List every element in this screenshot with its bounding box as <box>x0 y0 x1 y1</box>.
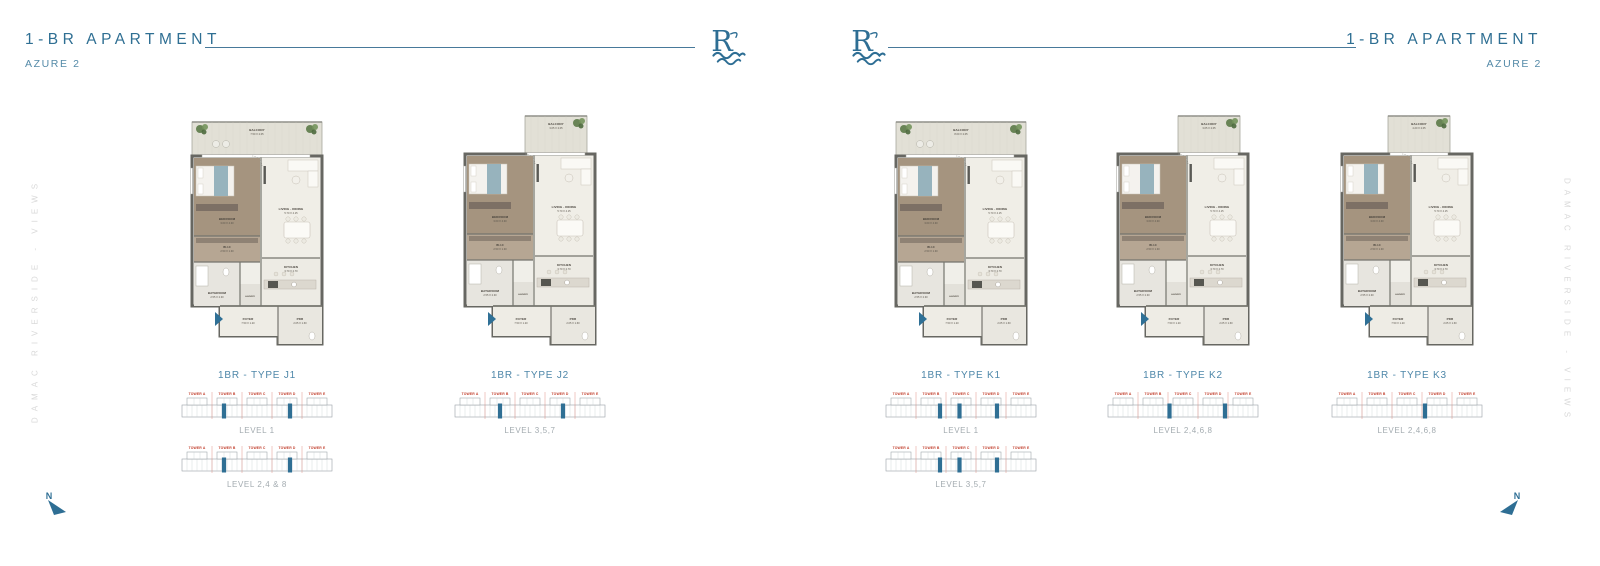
svg-text:3.70 X 2.70: 3.70 X 2.70 <box>988 269 1002 273</box>
svg-text:2.05 X 1.60: 2.05 X 1.60 <box>566 321 580 325</box>
svg-text:3.60 X 4.30: 3.60 X 4.30 <box>220 221 234 225</box>
north-arrow-icon: N <box>1496 488 1526 520</box>
svg-text:2.55 X 2.30: 2.55 X 2.30 <box>210 295 224 299</box>
svg-text:2.50 X 1.30: 2.50 X 1.30 <box>1370 247 1384 251</box>
svg-text:TOWER A: TOWER A <box>462 392 479 396</box>
keyplan-diagram: TOWER ATOWER BTOWER CTOWER DTOWER E <box>450 389 610 429</box>
level-label: LEVEL 2,4,6,8 <box>1332 426 1482 435</box>
svg-text:BALCONY: BALCONY <box>1411 122 1427 126</box>
floorplan-drawing-k3: BALCONY4.20 X 2.05BEDROOM3.60 X 4.30LIVI… <box>1332 108 1482 358</box>
svg-text:TOWER B: TOWER B <box>1369 392 1386 396</box>
svg-text:N: N <box>46 491 53 501</box>
svg-text:5.70 X 4.15: 5.70 X 4.15 <box>557 209 571 213</box>
svg-text:LAUNDRY: LAUNDRY <box>518 293 529 296</box>
svg-text:LIVING - DINING: LIVING - DINING <box>552 205 577 209</box>
svg-text:TOWER D: TOWER D <box>552 392 569 396</box>
floorplan-block-j1: BALCONY7.50 X 2.05BEDROOM3.60 X 4.30LIVI… <box>182 108 332 489</box>
level-label: LEVEL 2,4 & 8 <box>182 480 332 489</box>
svg-text:FOYER: FOYER <box>1393 317 1405 321</box>
keyplan-diagram: TOWER ATOWER BTOWER CTOWER DTOWER E <box>177 389 337 429</box>
svg-text:TOWER D: TOWER D <box>983 392 1000 396</box>
svg-text:LAUNDRY: LAUNDRY <box>1171 293 1182 296</box>
svg-text:2.55 X 2.30: 2.55 X 2.30 <box>1360 293 1374 297</box>
svg-text:KITCHEN: KITCHEN <box>1434 263 1448 267</box>
svg-text:TOWER E: TOWER E <box>1013 446 1030 450</box>
svg-text:TOWER C: TOWER C <box>953 446 970 450</box>
svg-text:3.05 X 2.05: 3.05 X 2.05 <box>549 126 563 130</box>
svg-text:BEDROOM: BEDROOM <box>1369 215 1386 219</box>
svg-text:3.60 X 4.30: 3.60 X 4.30 <box>924 221 938 225</box>
svg-text:FOYER: FOYER <box>516 317 528 321</box>
svg-text:TOWER E: TOWER E <box>1235 392 1252 396</box>
north-arrow-icon: N <box>40 488 70 520</box>
level-label: LEVEL 2,4,6,8 <box>1108 426 1258 435</box>
svg-text:TOWER B: TOWER B <box>1145 392 1162 396</box>
svg-text:2.55 X 2.30: 2.55 X 2.30 <box>914 295 928 299</box>
svg-text:TOWER A: TOWER A <box>893 392 910 396</box>
svg-text:3.70 X 2.70: 3.70 X 2.70 <box>1210 267 1224 271</box>
level-label: LEVEL 3,5,7 <box>455 426 605 435</box>
svg-text:BEDROOM: BEDROOM <box>492 215 509 219</box>
svg-text:4.20 X 2.05: 4.20 X 2.05 <box>1412 126 1426 130</box>
level-label: LEVEL 1 <box>182 426 332 435</box>
svg-text:LIVING - DINING: LIVING - DINING <box>279 207 304 211</box>
brand-logo-icon: R <box>843 20 895 72</box>
svg-text:TOWER A: TOWER A <box>189 446 206 450</box>
page-subtitle-left: AZURE 2 <box>25 58 81 70</box>
svg-text:LIVING - DINING: LIVING - DINING <box>1429 205 1454 209</box>
svg-text:3.70 X 2.70: 3.70 X 2.70 <box>557 267 571 271</box>
svg-text:TOWER E: TOWER E <box>1013 392 1030 396</box>
level-label: LEVEL 1 <box>886 426 1036 435</box>
svg-text:TOWER A: TOWER A <box>189 392 206 396</box>
svg-text:2.55 X 2.30: 2.55 X 2.30 <box>483 293 497 297</box>
svg-text:BEDROOM: BEDROOM <box>923 217 940 221</box>
svg-text:TOWER D: TOWER D <box>279 392 296 396</box>
floorplan-block-k2: BALCONY3.05 X 2.05BEDROOM3.60 X 4.30LIVI… <box>1108 108 1258 435</box>
svg-text:TOWER B: TOWER B <box>219 446 236 450</box>
svg-text:TOWER A: TOWER A <box>1115 392 1132 396</box>
svg-text:W.I.C: W.I.C <box>927 245 936 249</box>
svg-text:2.50 X 1.30: 2.50 X 1.30 <box>924 249 938 253</box>
svg-text:FOYER: FOYER <box>947 317 959 321</box>
svg-text:PDR: PDR <box>1447 317 1454 321</box>
brand-logo-icon: R <box>703 20 755 72</box>
svg-text:3.70 X 2.70: 3.70 X 2.70 <box>1434 267 1448 271</box>
svg-text:BALCONY: BALCONY <box>1201 122 1217 126</box>
svg-text:3.05 X 2.05: 3.05 X 2.05 <box>1202 126 1216 130</box>
svg-text:TOWER A: TOWER A <box>1339 392 1356 396</box>
svg-text:TOWER E: TOWER E <box>582 392 599 396</box>
page-title-left: 1-BR APARTMENT <box>25 31 221 49</box>
svg-text:TOWER C: TOWER C <box>249 446 266 450</box>
svg-text:BATHROOM: BATHROOM <box>481 289 500 293</box>
svg-text:TOWER D: TOWER D <box>1429 392 1446 396</box>
keyplan-diagram: TOWER ATOWER BTOWER CTOWER DTOWER E <box>881 443 1041 483</box>
level-label: LEVEL 3,5,7 <box>886 480 1036 489</box>
svg-text:TOWER C: TOWER C <box>1175 392 1192 396</box>
svg-text:BATHROOM: BATHROOM <box>912 291 931 295</box>
plan-type-label: 1BR - TYPE K2 <box>1108 370 1258 381</box>
page-title-right: 1-BR APARTMENT <box>1222 31 1542 49</box>
svg-text:7.50 X 1.20: 7.50 X 1.20 <box>514 321 528 325</box>
svg-text:5.70 X 4.15: 5.70 X 4.15 <box>1434 209 1448 213</box>
svg-text:TOWER B: TOWER B <box>492 392 509 396</box>
plan-type-label: 1BR - TYPE K1 <box>886 370 1036 381</box>
svg-text:3.60 X 4.30: 3.60 X 4.30 <box>493 219 507 223</box>
svg-text:TOWER B: TOWER B <box>923 446 940 450</box>
svg-text:3.60 X 4.30: 3.60 X 4.30 <box>1370 219 1384 223</box>
svg-text:5.70 X 4.15: 5.70 X 4.15 <box>1210 209 1224 213</box>
svg-text:BALCONY: BALCONY <box>249 128 265 132</box>
svg-text:LAUNDRY: LAUNDRY <box>245 295 256 298</box>
svg-text:2.50 X 1.30: 2.50 X 1.30 <box>493 247 507 251</box>
svg-text:TOWER D: TOWER D <box>1205 392 1222 396</box>
svg-text:TOWER B: TOWER B <box>923 392 940 396</box>
brochure-spread: DAMAC RIVERSIDE - VIEWS DAMAC RIVERSIDE … <box>0 0 1600 566</box>
svg-text:KITCHEN: KITCHEN <box>988 265 1002 269</box>
svg-text:7.50 X 2.05: 7.50 X 2.05 <box>250 132 264 136</box>
svg-text:TOWER E: TOWER E <box>309 392 326 396</box>
floorplan-block-k3: BALCONY4.20 X 2.05BEDROOM3.60 X 4.30LIVI… <box>1332 108 1482 435</box>
svg-text:7.50 X 1.20: 7.50 X 1.20 <box>1391 321 1405 325</box>
svg-text:5.70 X 4.15: 5.70 X 4.15 <box>284 211 298 215</box>
floorplan-block-j2: BALCONY3.05 X 2.05BEDROOM3.60 X 4.30LIVI… <box>455 108 605 435</box>
svg-text:TOWER B: TOWER B <box>219 392 236 396</box>
svg-text:TOWER E: TOWER E <box>1459 392 1476 396</box>
svg-text:BEDROOM: BEDROOM <box>219 217 236 221</box>
svg-text:2.50 X 1.30: 2.50 X 1.30 <box>220 249 234 253</box>
floorplan-drawing-k1: BALCONY8.00 X 2.05BEDROOM3.60 X 4.30LIVI… <box>886 108 1036 358</box>
svg-text:FOYER: FOYER <box>243 317 255 321</box>
svg-text:PDR: PDR <box>1223 317 1230 321</box>
svg-text:2.05 X 1.60: 2.05 X 1.60 <box>1219 321 1233 325</box>
svg-text:BEDROOM: BEDROOM <box>1145 215 1162 219</box>
svg-text:KITCHEN: KITCHEN <box>1210 263 1224 267</box>
svg-text:W.I.C: W.I.C <box>1373 243 1382 247</box>
svg-text:N: N <box>1514 491 1521 501</box>
svg-text:KITCHEN: KITCHEN <box>284 265 298 269</box>
svg-text:7.50 X 1.20: 7.50 X 1.20 <box>1167 321 1181 325</box>
svg-text:BATHROOM: BATHROOM <box>208 291 227 295</box>
svg-text:TOWER D: TOWER D <box>983 446 1000 450</box>
svg-text:PDR: PDR <box>1001 317 1008 321</box>
svg-text:2.55 X 2.30: 2.55 X 2.30 <box>1136 293 1150 297</box>
svg-text:2.05 X 1.60: 2.05 X 1.60 <box>1443 321 1457 325</box>
svg-text:PDR: PDR <box>297 317 304 321</box>
side-watermark-left: DAMAC RIVERSIDE - VIEWS <box>31 91 40 511</box>
svg-text:W.I.C: W.I.C <box>223 245 232 249</box>
svg-text:BATHROOM: BATHROOM <box>1358 289 1377 293</box>
floorplan-block-k1: BALCONY8.00 X 2.05BEDROOM3.60 X 4.30LIVI… <box>886 108 1036 489</box>
side-watermark-right: DAMAC RIVERSIDE - VIEWS <box>1563 91 1572 511</box>
svg-text:W.I.C: W.I.C <box>496 243 505 247</box>
svg-text:7.50 X 1.20: 7.50 X 1.20 <box>945 321 959 325</box>
floorplan-drawing-k2: BALCONY3.05 X 2.05BEDROOM3.60 X 4.30LIVI… <box>1108 108 1258 358</box>
svg-text:TOWER C: TOWER C <box>522 392 539 396</box>
svg-text:2.05 X 1.60: 2.05 X 1.60 <box>293 321 307 325</box>
keyplan-diagram: TOWER ATOWER BTOWER CTOWER DTOWER E <box>177 443 337 483</box>
svg-text:BATHROOM: BATHROOM <box>1134 289 1153 293</box>
page-subtitle-right: AZURE 2 <box>1222 58 1542 70</box>
svg-text:8.00 X 2.05: 8.00 X 2.05 <box>954 132 968 136</box>
svg-text:TOWER C: TOWER C <box>1399 392 1416 396</box>
plan-type-label: 1BR - TYPE K3 <box>1332 370 1482 381</box>
svg-text:KITCHEN: KITCHEN <box>557 263 571 267</box>
svg-text:7.50 X 1.20: 7.50 X 1.20 <box>241 321 255 325</box>
svg-text:LAUNDRY: LAUNDRY <box>949 295 960 298</box>
keyplan-diagram: TOWER ATOWER BTOWER CTOWER DTOWER E <box>1327 389 1487 429</box>
svg-text:3.60 X 4.30: 3.60 X 4.30 <box>1146 219 1160 223</box>
keyplan-diagram: TOWER ATOWER BTOWER CTOWER DTOWER E <box>881 389 1041 429</box>
svg-text:W.I.C: W.I.C <box>1149 243 1158 247</box>
floorplan-drawing-j2: BALCONY3.05 X 2.05BEDROOM3.60 X 4.30LIVI… <box>455 108 605 358</box>
svg-text:TOWER C: TOWER C <box>953 392 970 396</box>
plan-type-label: 1BR - TYPE J1 <box>182 370 332 381</box>
svg-text:LIVING - DINING: LIVING - DINING <box>983 207 1008 211</box>
plan-type-label: 1BR - TYPE J2 <box>455 370 605 381</box>
svg-text:FOYER: FOYER <box>1169 317 1181 321</box>
svg-text:LIVING - DINING: LIVING - DINING <box>1205 205 1230 209</box>
svg-text:TOWER D: TOWER D <box>279 446 296 450</box>
svg-text:BALCONY: BALCONY <box>548 122 564 126</box>
svg-text:TOWER A: TOWER A <box>893 446 910 450</box>
floorplan-drawing-j1: BALCONY7.50 X 2.05BEDROOM3.60 X 4.30LIVI… <box>182 108 332 358</box>
svg-text:2.05 X 1.60: 2.05 X 1.60 <box>997 321 1011 325</box>
svg-text:2.50 X 1.30: 2.50 X 1.30 <box>1146 247 1160 251</box>
header-rule-left <box>205 47 695 48</box>
svg-text:5.70 X 4.15: 5.70 X 4.15 <box>988 211 1002 215</box>
svg-text:TOWER C: TOWER C <box>249 392 266 396</box>
svg-text:PDR: PDR <box>570 317 577 321</box>
keyplan-diagram: TOWER ATOWER BTOWER CTOWER DTOWER E <box>1103 389 1263 429</box>
svg-text:TOWER E: TOWER E <box>309 446 326 450</box>
svg-text:BALCONY: BALCONY <box>953 128 969 132</box>
svg-text:LAUNDRY: LAUNDRY <box>1395 293 1406 296</box>
svg-text:3.70 X 2.70: 3.70 X 2.70 <box>284 269 298 273</box>
